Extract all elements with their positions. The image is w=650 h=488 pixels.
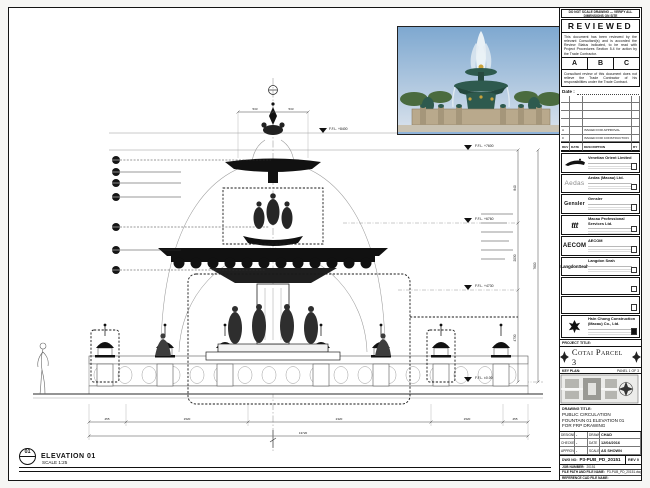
svg-text:533: 533 (252, 107, 257, 111)
project-title-band: Cotai Parcel 3 (560, 347, 641, 368)
svg-text:2030: 2030 (513, 254, 517, 261)
fountain-photo-illustration (398, 27, 564, 132)
langdon-seah-logo: LangdonSeah (562, 258, 587, 276)
status-option-c: C (614, 58, 639, 69)
designed-label: DESIGNED (560, 432, 575, 440)
dwg-rev: REV 0 (625, 456, 639, 464)
gensler-logo: Gensler (562, 195, 587, 213)
revision-desc: ISSUED FOR APPROVAL (583, 127, 632, 135)
revision-by (632, 135, 640, 143)
consultant-name: AECOM (588, 239, 638, 243)
revision-date (570, 135, 583, 143)
consultant-empty-box (561, 277, 640, 295)
svg-text:F.F.L. +8400: F.F.L. +8400 (329, 127, 348, 131)
consultant-qs: LangdonSeah Langdon Seah (561, 257, 640, 277)
date-fill-line (577, 89, 639, 95)
ttt-logo: ttt (562, 216, 587, 235)
elevation-scale: SCALE 1:25 (42, 460, 96, 465)
dwg-number-row: DWG NO: P3-PUB_PD_20151 REV 0 (560, 456, 641, 465)
address-lines (588, 328, 632, 335)
revision-by (632, 127, 640, 135)
address-lines (588, 227, 632, 234)
dwg-value: P3-PUB_PD_20151 (579, 457, 625, 462)
project-name: Cotai Parcel 3 (572, 347, 629, 367)
project-title-label: PROJECT TITLE: (560, 339, 641, 347)
svg-text:840: 840 (513, 185, 517, 191)
address-lines (588, 162, 632, 169)
svg-text:13720: 13720 (299, 431, 308, 435)
svg-text:1520: 1520 (184, 417, 191, 421)
svg-text:F.F.L. +4730: F.F.L. +4730 (475, 284, 494, 288)
ornament-right-icon (632, 351, 641, 363)
stamp-date-line: Date : (560, 88, 641, 96)
key-plan-header: KEY PLAN: PANEL 1 OF 3 (560, 368, 641, 375)
elevation-bubble: 01 (19, 448, 36, 465)
upper-figures (254, 193, 293, 229)
aedas-logo: Aedas (562, 175, 587, 193)
stamp-checkbox (631, 246, 638, 253)
job-label: JOB NUMBER: (562, 465, 585, 469)
date-header: DATE (570, 142, 583, 151)
key-plan-label: KEY PLAN: (562, 369, 580, 373)
date-label: Date : (562, 89, 575, 94)
approved-label: APPROVED (560, 447, 575, 455)
svg-text:455: 455 (512, 417, 517, 421)
revision-rev: 0 (561, 135, 570, 143)
human-scale-figure (38, 343, 49, 394)
bottom-dimensions: 455 1520 2320 1520 455 13720 (88, 404, 530, 448)
stamp-checkbox (631, 204, 638, 211)
stamp-checkbox (631, 184, 638, 191)
file-label: FILE PATH AND FILE NAME: (562, 470, 605, 474)
file-value: P3-PUB_PD_20151.dwg (607, 470, 641, 474)
title-block: DO NOT SCALE DRAWING — VERIFY ALL DIMENS… (559, 8, 641, 480)
address-lines (588, 265, 632, 272)
status-option-b: B (588, 58, 614, 69)
consultant-empty-box (561, 296, 640, 314)
elevation-number: 01 (24, 449, 30, 455)
finial (261, 102, 284, 135)
designed-value: - (575, 432, 588, 440)
date-label: DATE (588, 439, 600, 447)
review-stamp: REVIEWED This document has been reviewed… (561, 19, 640, 87)
stamp-checkbox (631, 286, 638, 293)
sheet-note: DO NOT SCALE DRAWING — VERIFY ALL DIMENS… (561, 9, 640, 18)
reference-label: REFERENCE CAD FILE NAME: (562, 476, 609, 480)
revision-date (570, 127, 583, 135)
stamp-checkbox (631, 328, 638, 335)
review-status-options: A B C (562, 58, 639, 70)
review-stamp-disclaimer: Consultant review of this document does … (562, 70, 639, 86)
drawing-title-label: DRAWING TITLE: (562, 407, 639, 411)
gondola-logo-icon (562, 154, 587, 172)
contractor-emblem-icon (562, 316, 587, 337)
drawing-info-table: DESIGNED - DRAWN CHAD CHECKED - DATE 12/… (560, 432, 641, 456)
svg-text:1520: 1520 (464, 417, 471, 421)
reference-row: REFERENCE CAD FILE NAME: (560, 476, 641, 480)
vertical-dimensions: 840 2030 4730 7600 (513, 149, 540, 384)
key-plan-panel: PANEL 1 OF 3 (617, 369, 639, 373)
revision-rev: A (561, 127, 570, 135)
consultant-name: Aedas (Macau) Ltd. (588, 176, 638, 180)
revision-table: A ISSUED FOR APPROVAL 0 ISSUED FOR CONST… (561, 96, 640, 153)
revision-desc: ISSUED FOR CONSTRUCTION (583, 135, 632, 143)
review-stamp-title: REVIEWED (562, 20, 639, 33)
photo-foreground (398, 125, 564, 132)
consultant-name: Langdon Seah (588, 259, 638, 263)
consultant-engineer: AECOM AECOM (561, 236, 640, 256)
stamp-checkbox (631, 267, 638, 274)
svg-text:4730: 4730 (513, 334, 517, 341)
reference-photo (397, 26, 567, 135)
svg-text:2320: 2320 (336, 417, 343, 421)
scale-label: SCALE (588, 447, 600, 455)
consultant-architect: Aedas Aedas (Macau) Ltd. (561, 174, 640, 194)
stamp-checkbox (631, 304, 638, 311)
aecom-logo: AECOM (562, 237, 587, 255)
consultant-services: ttt Macau Professional Services Ltd. (561, 215, 640, 236)
elevation-underline (19, 467, 551, 472)
drawing-sheet-page: F.F.L. +8400 F.F.L. +7600 F.F.L. +6760 F… (0, 0, 650, 488)
consultant-designer: Gensler Gensler (561, 194, 640, 214)
centerline-mark (270, 430, 276, 448)
client-name: Venetian Orient Limited (588, 156, 638, 160)
job-value: 20151 (587, 465, 596, 469)
drawing-title-line: FOR FRP DRAWING (562, 423, 639, 429)
consultant-name: Gensler (588, 197, 638, 201)
stamp-checkbox (631, 226, 638, 233)
ornament-left-icon (560, 351, 569, 363)
drawn-value: CHAD (600, 432, 641, 440)
checked-label: CHECKED (560, 439, 575, 447)
dwg-label: DWG NO: (562, 458, 577, 462)
svg-text:7600: 7600 (533, 262, 537, 269)
address-lines (588, 182, 632, 189)
drawn-label: DRAWN (588, 432, 600, 440)
svg-text:F.F.L. +6760: F.F.L. +6760 (475, 217, 494, 221)
status-option-a: A (562, 58, 588, 69)
drawing-title-block: DRAWING TITLE: PUBLIC CIRCULATION FOUNTA… (560, 405, 641, 431)
sheet-border: F.F.L. +8400 F.F.L. +7600 F.F.L. +6760 F… (8, 7, 642, 481)
address-lines (588, 245, 632, 252)
by-header: BY (632, 142, 640, 151)
date-value: 12/04/2016 (600, 439, 641, 447)
description-header: DESCRIPTION (583, 142, 632, 151)
address-lines (588, 203, 632, 210)
approved-value: - (575, 447, 588, 455)
checked-value: - (575, 439, 588, 447)
contractor-box: Hsin Chong Construction (Macau) Co., Ltd… (561, 315, 640, 338)
rev-header: REV (561, 142, 570, 151)
elevation-tag: 01 ELEVATION 01 SCALE 1:25 (19, 448, 551, 472)
stamp-checkbox (631, 163, 638, 170)
consultant-name: Macau Professional Services Ltd. (588, 217, 638, 226)
svg-text:455: 455 (104, 417, 109, 421)
svg-text:F.F.L. +7600: F.F.L. +7600 (475, 144, 494, 148)
contractor-name: Hsin Chong Construction (Macau) Co., Ltd… (588, 317, 638, 326)
elevation-title: ELEVATION 01 (41, 453, 96, 460)
consultant-client: Venetian Orient Limited (561, 153, 640, 173)
key-plan-map (560, 374, 641, 405)
svg-text:533: 533 (288, 107, 293, 111)
svg-text:F.F.L. ±0.00: F.F.L. ±0.00 (475, 376, 493, 380)
review-stamp-body: This document has been reviewed by the r… (562, 33, 639, 58)
scale-value: AS SHOWN (600, 447, 641, 455)
